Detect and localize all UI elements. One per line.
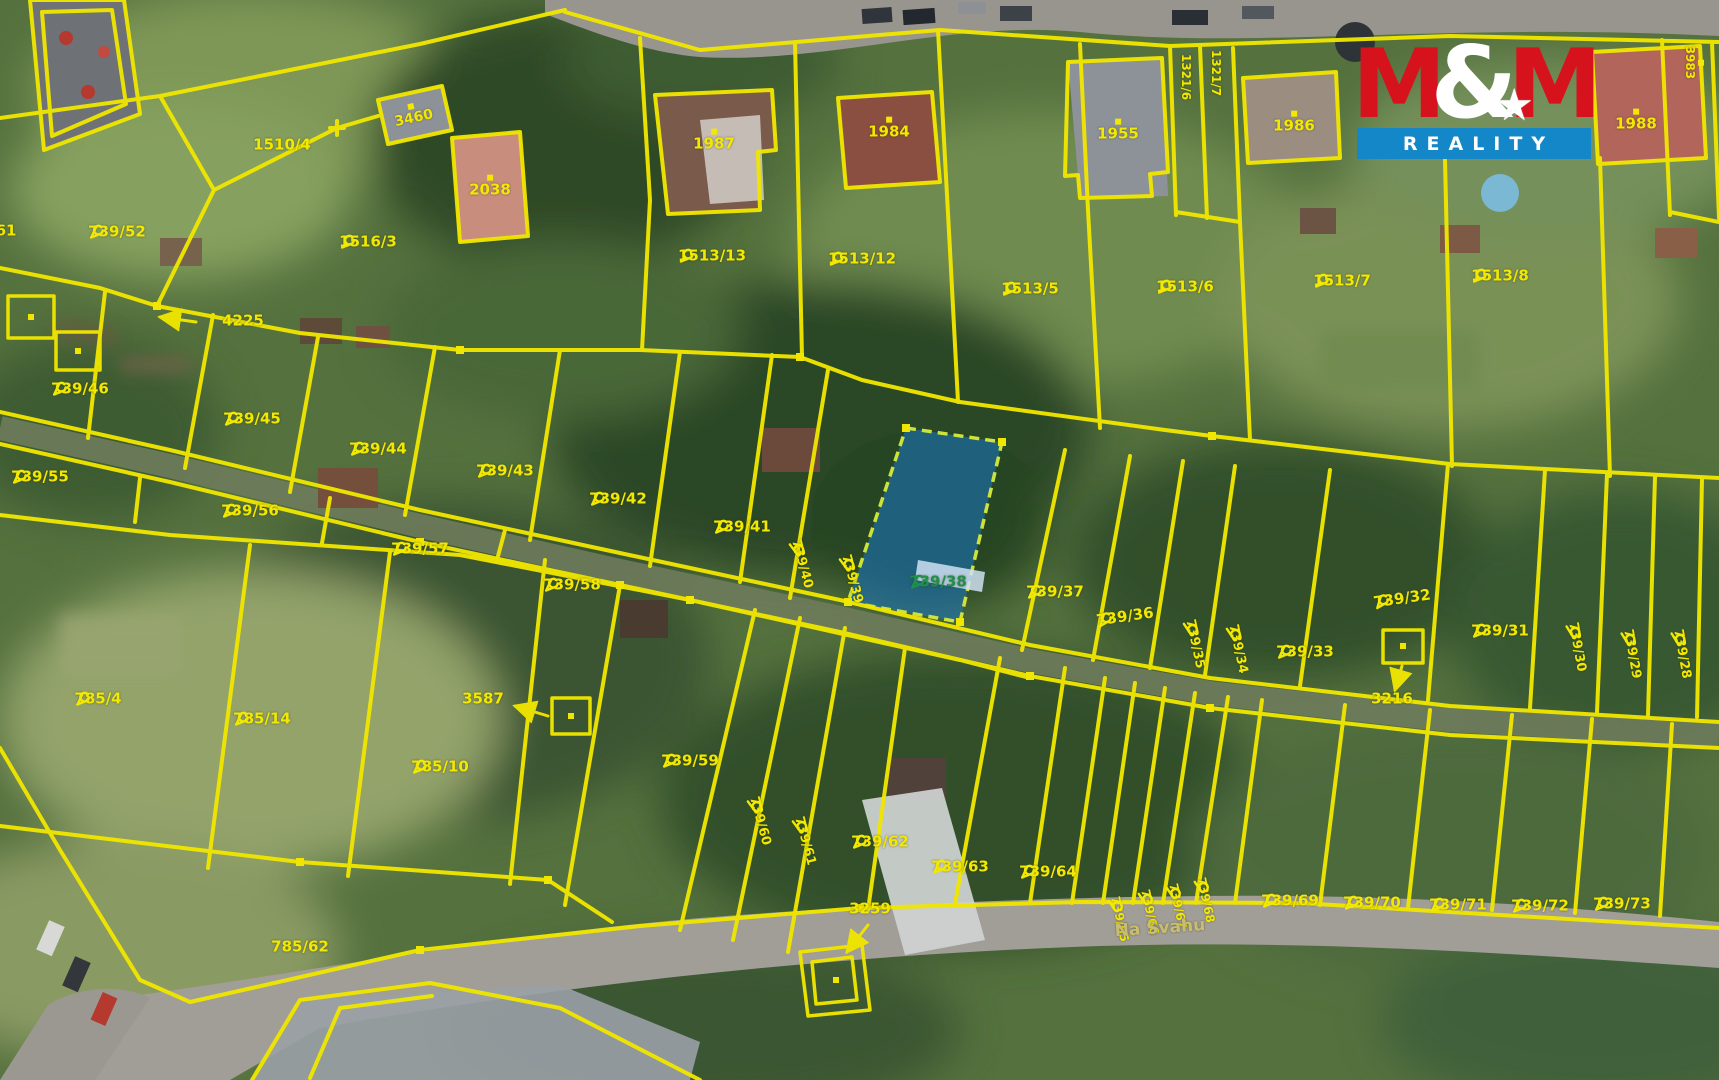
- logo-letter-m1: M: [1352, 30, 1441, 140]
- mm-reality-logo: M&M ★ REALITY: [1350, 40, 1598, 160]
- map-viewport[interactable]: 61739/521510/4346020381516/3422519871984…: [0, 0, 1719, 1080]
- map-canvas[interactable]: [0, 0, 1719, 1080]
- logo-star-icon: ★: [1495, 80, 1534, 131]
- mm-logo-wordmark: M&M ★: [1350, 40, 1598, 126]
